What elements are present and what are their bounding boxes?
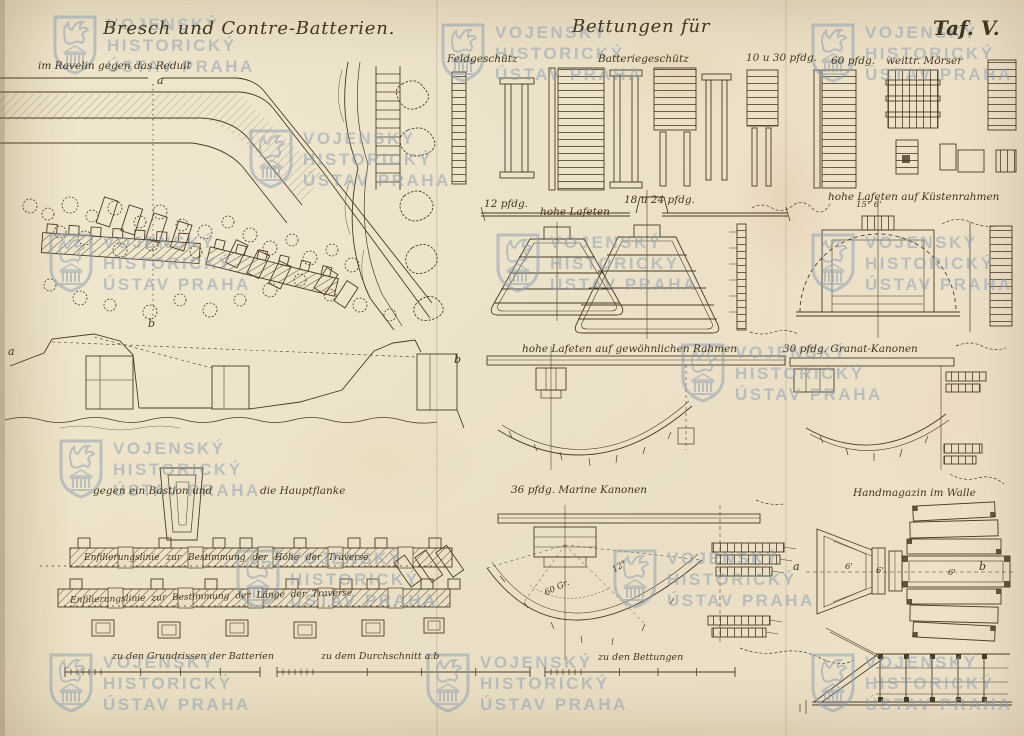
label-granat-kanonen: 30 pfdg. Granat-Kanonen <box>783 343 918 355</box>
annotation-15-6: 15° 6' <box>856 200 882 210</box>
label-bastion: gegen ein Bastion und <box>93 485 212 497</box>
label-handmagazin: Handmagazin im Walle <box>853 487 976 499</box>
annotation-60-gr: 60 Gr. <box>543 578 571 598</box>
label-batteriegeschuetz: Batteriegeschütz <box>598 53 689 65</box>
marker-b-plan: b <box>148 317 155 330</box>
label-10-30-pfdg: 10 u 30 pfdg. <box>746 52 817 64</box>
plate-number: Taf. V. <box>933 16 1000 40</box>
label-scale-grundrisse: zu den Grundrissen der Batterien <box>112 651 274 662</box>
label-enfilade-hoehe: Enfilierungslinie zur Bestimmung der Höh… <box>84 553 368 563</box>
annotation-6ft: 6' <box>948 568 956 578</box>
label-kuestenrahmen: hohe Lafeten auf Küstenrahmen <box>828 191 999 203</box>
title-left: Bresch und Contre-Batterien. <box>103 18 395 39</box>
title-center: Bettungen für <box>572 16 710 37</box>
label-hohe-lafeten: hohe Lafeten <box>540 206 610 218</box>
label-hauptflanke: die Hauptflanke <box>260 485 345 497</box>
label-scale-durchschnitt: zu dem Durchschnitt a.b <box>321 651 439 662</box>
label-layer: Bresch und Contre-Batterien. Bettungen f… <box>0 0 1024 736</box>
label-feldgeschuetz: Feldgeschütz <box>447 53 518 65</box>
label-enfilade-laenge: Enfilierungslinie zur Bestimmung der Län… <box>70 588 352 605</box>
marker-a-magazin: a <box>793 560 800 573</box>
label-18-24-pfdg: 18 u 24 pfdg. <box>624 194 695 206</box>
label-gewoehnliche-rahmen: hohe Lafeten auf gewöhnlichen Rahmen <box>522 343 737 355</box>
plate-taf-v: VOJENSKÝHISTORICKÝÚSTAV PRAHAVOJENSKÝHIS… <box>0 0 1024 736</box>
annotation-12: 12° <box>611 559 629 575</box>
marker-a-section: a <box>8 345 15 358</box>
marker-b-section: b <box>454 353 461 366</box>
annotation-6ft: 6' <box>876 566 884 576</box>
label-moerser: weittr. Mörser <box>886 55 962 67</box>
label-scale-bettungen: zu den Bettungen <box>598 652 683 663</box>
label-60-pfdg: 60 pfdg. <box>831 55 875 67</box>
label-ravelin: im Ravelin gegen das Reduit <box>38 60 191 72</box>
label-marine-kanonen: 36 pfdg. Marine Kanonen <box>511 484 647 496</box>
annotation-6ft: 6' <box>845 562 853 572</box>
label-12-pfdg: 12 pfdg. <box>484 198 528 210</box>
marker-a-plan: a <box>157 74 164 87</box>
marker-b-magazin: b <box>979 560 986 573</box>
